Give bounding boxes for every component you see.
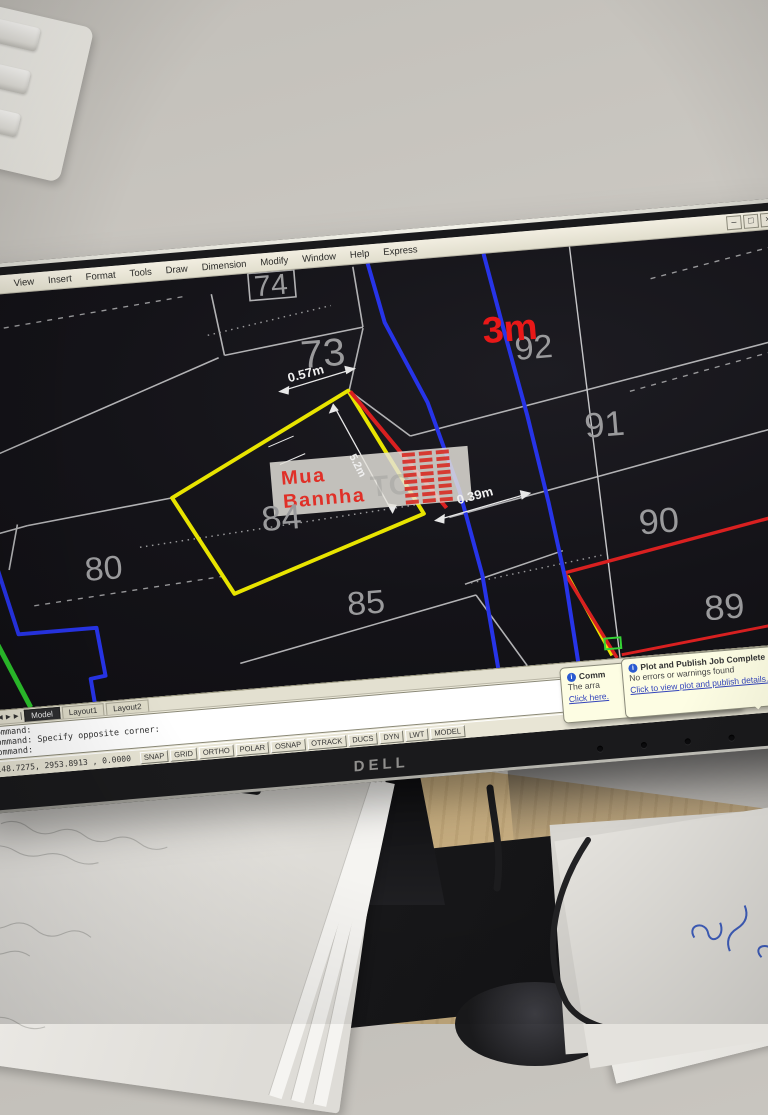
survey-line bbox=[569, 245, 620, 659]
status-toggle-model[interactable]: MODEL bbox=[430, 725, 466, 740]
parcel-label-74: 74 bbox=[253, 268, 289, 303]
status-toggle-dyn[interactable]: DYN bbox=[379, 730, 404, 744]
parcel-label-80: 80 bbox=[83, 549, 124, 588]
parcel-label-3m: 3m bbox=[481, 305, 539, 351]
dell-logo: DELL bbox=[354, 754, 409, 776]
close-button[interactable]: × bbox=[760, 212, 768, 227]
menu-item-tools[interactable]: Tools bbox=[122, 266, 159, 280]
parcel-map: TC Mua Bannha 7473929190898485803m0.57m5… bbox=[0, 229, 768, 711]
status-toggle-ducs[interactable]: DUCS bbox=[348, 732, 378, 746]
parcel-label-85: 85 bbox=[346, 584, 387, 623]
parcel-label-89: 89 bbox=[703, 586, 746, 629]
light-switch-rocker bbox=[0, 11, 41, 52]
menu-item-format[interactable]: Format bbox=[78, 269, 123, 284]
minimize-button[interactable]: – bbox=[726, 215, 742, 230]
light-switch-rocker bbox=[0, 97, 21, 138]
watermark-line1: Mua bbox=[280, 464, 326, 489]
status-toggle-ortho[interactable]: ORTHO bbox=[198, 744, 234, 759]
menu-item-draw[interactable]: Draw bbox=[158, 263, 195, 277]
drawing-canvas[interactable]: TC Mua Bannha 7473929190898485803m0.57m5… bbox=[0, 229, 768, 711]
light-switch-panel bbox=[0, 3, 94, 182]
status-toggle-otrack[interactable]: OTRACK bbox=[307, 734, 347, 749]
paper-stack-right bbox=[561, 802, 768, 1083]
parcel-label-91: 91 bbox=[583, 403, 626, 446]
info-icon: i bbox=[628, 663, 638, 673]
menu-item-insert[interactable]: Insert bbox=[41, 272, 80, 286]
window-buttons: – □ × bbox=[726, 212, 768, 230]
menu-item-express[interactable]: Express bbox=[376, 243, 425, 258]
menu-item-help[interactable]: Help bbox=[342, 247, 376, 261]
tab-layout2[interactable]: Layout2 bbox=[106, 699, 149, 715]
tab-model[interactable]: Model bbox=[24, 706, 61, 721]
tab-layout1[interactable]: Layout1 bbox=[61, 703, 104, 719]
green-line bbox=[0, 594, 31, 711]
cad-application-window: FileEditViewInsertFormatToolsDrawDimensi… bbox=[0, 210, 768, 778]
status-toggle-lwt[interactable]: LWT bbox=[405, 728, 429, 742]
dimension-label-0.57m: 0.57m bbox=[286, 362, 326, 385]
parcel-label-90: 90 bbox=[637, 500, 680, 543]
watermark-faint-text: TC bbox=[369, 468, 412, 504]
light-switch-rocker bbox=[0, 54, 31, 95]
menu-item-modify[interactable]: Modify bbox=[253, 254, 296, 268]
dell-monitor: FileEditViewInsertFormatToolsDrawDimensi… bbox=[0, 197, 768, 815]
menu-item-view[interactable]: View bbox=[6, 275, 41, 289]
status-toggle-polar[interactable]: POLAR bbox=[235, 741, 269, 756]
status-toggle-osnap[interactable]: OSNAP bbox=[271, 738, 306, 753]
status-toggle-grid[interactable]: GRID bbox=[170, 747, 198, 761]
restore-button[interactable]: □ bbox=[743, 214, 759, 229]
handwriting-blue bbox=[681, 879, 768, 1001]
speaker-holes bbox=[597, 734, 735, 752]
info-icon: i bbox=[567, 672, 577, 682]
status-toggle-snap[interactable]: SNAP bbox=[139, 749, 168, 763]
parcel-label-84: 84 bbox=[260, 496, 303, 539]
menu-item-window[interactable]: Window bbox=[295, 250, 344, 265]
tab-nav-arrows[interactable]: |◄◄►►| bbox=[0, 711, 22, 723]
menu-item-dimension[interactable]: Dimension bbox=[194, 258, 254, 274]
